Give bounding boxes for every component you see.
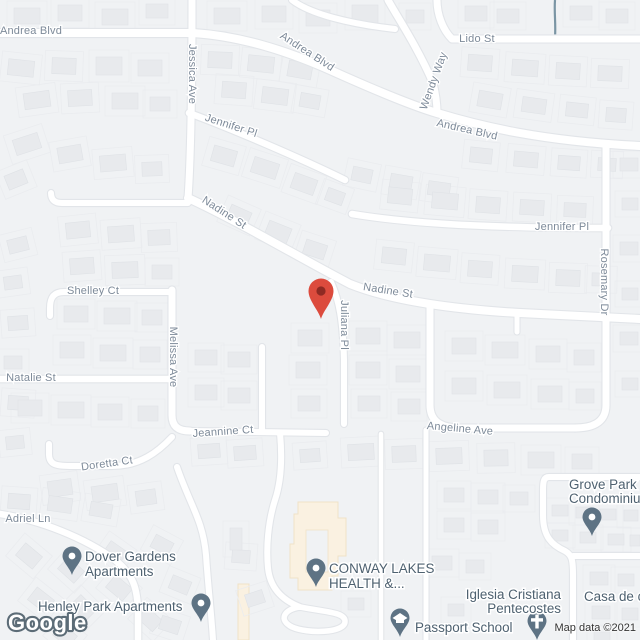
building bbox=[247, 55, 275, 74]
building bbox=[47, 478, 73, 497]
building bbox=[478, 520, 498, 534]
street-label-jessica-ave-5: Jessica Ave bbox=[186, 44, 198, 104]
building bbox=[4, 356, 22, 369]
building bbox=[484, 450, 508, 466]
building bbox=[630, 535, 640, 546]
building bbox=[497, 9, 519, 23]
building bbox=[195, 385, 217, 400]
building bbox=[150, 97, 170, 111]
building bbox=[396, 366, 420, 382]
building bbox=[142, 310, 162, 325]
building bbox=[431, 192, 458, 210]
building bbox=[448, 604, 464, 616]
building bbox=[195, 350, 217, 365]
building bbox=[7, 59, 35, 78]
building bbox=[198, 443, 221, 459]
building bbox=[572, 454, 592, 469]
building bbox=[444, 518, 464, 532]
building bbox=[140, 347, 160, 362]
poi-dot-icon bbox=[69, 553, 76, 560]
building bbox=[465, 6, 487, 21]
building bbox=[381, 247, 407, 265]
building bbox=[142, 162, 162, 177]
destination-pin-dot bbox=[316, 286, 325, 295]
school-cap-base-icon bbox=[396, 620, 404, 624]
street-label-adriel-ln-18: Adriel Ln bbox=[5, 513, 50, 525]
building bbox=[536, 346, 560, 362]
building bbox=[3, 275, 23, 290]
building bbox=[208, 52, 233, 69]
building bbox=[23, 90, 51, 109]
building bbox=[228, 388, 250, 403]
poi-label-casa-de-c[interactable]: Casa de c bbox=[584, 589, 640, 604]
poi-label-dover-gardens-apartments[interactable]: Dover Gardens bbox=[85, 549, 176, 564]
street-label-shelley-ct-11: Shelley Ct bbox=[67, 285, 119, 297]
building bbox=[234, 445, 257, 461]
building bbox=[356, 362, 380, 378]
poi-label-grove-park-condominiums[interactable]: Grove Park bbox=[569, 477, 637, 492]
building bbox=[556, 270, 581, 287]
street-label-jennifer-pl-7: Jennifer Pl bbox=[535, 221, 589, 233]
poi-dot-icon bbox=[589, 514, 596, 521]
building bbox=[558, 155, 581, 171]
building bbox=[65, 221, 91, 239]
building bbox=[590, 572, 608, 585]
building bbox=[552, 505, 568, 516]
building bbox=[513, 151, 538, 168]
building bbox=[576, 389, 594, 403]
building bbox=[152, 265, 172, 279]
building bbox=[466, 560, 484, 573]
street-label-andrea-blvd-0: Andrea Blvd bbox=[0, 25, 62, 37]
building bbox=[296, 362, 320, 378]
poi-label-dover-gardens-apartments[interactable]: Apartments bbox=[85, 564, 154, 579]
map-attribution: Map data ©2021 bbox=[555, 622, 637, 634]
building bbox=[452, 378, 476, 394]
poi-label-conway-lakes-health[interactable]: CONWAY LAKES bbox=[329, 561, 434, 576]
street-label-lido-st-3: Lido St bbox=[459, 33, 495, 45]
church-cross-icon bbox=[531, 618, 543, 621]
building bbox=[261, 86, 289, 105]
building bbox=[492, 342, 518, 358]
building bbox=[135, 489, 157, 507]
map-canvas[interactable]: Andrea BlvdAndrea BlvdAndrea BlvdLido St… bbox=[0, 0, 640, 640]
building bbox=[618, 574, 634, 586]
building bbox=[606, 107, 627, 122]
building bbox=[620, 242, 638, 255]
building bbox=[64, 306, 88, 322]
building bbox=[96, 57, 122, 75]
aoi-building-sliver bbox=[238, 584, 249, 640]
poi-dot-icon bbox=[313, 565, 320, 572]
building bbox=[423, 254, 450, 272]
building bbox=[298, 330, 322, 346]
building bbox=[469, 147, 492, 164]
building bbox=[520, 199, 545, 215]
building bbox=[58, 402, 84, 418]
building bbox=[478, 490, 498, 504]
building bbox=[622, 378, 638, 390]
building bbox=[394, 332, 420, 348]
building bbox=[556, 62, 581, 79]
building bbox=[14, 8, 40, 24]
creek-line bbox=[555, 0, 556, 37]
building bbox=[598, 66, 623, 82]
building bbox=[232, 549, 251, 563]
building bbox=[230, 528, 242, 550]
building bbox=[622, 198, 638, 210]
building bbox=[432, 556, 452, 570]
building bbox=[60, 342, 84, 358]
building bbox=[521, 96, 547, 114]
building bbox=[112, 262, 139, 279]
building bbox=[8, 493, 31, 509]
building bbox=[107, 225, 134, 243]
building bbox=[104, 308, 130, 324]
building bbox=[620, 158, 638, 171]
building bbox=[348, 598, 364, 610]
building bbox=[565, 102, 588, 118]
building bbox=[564, 203, 586, 218]
poi-label-passport-school[interactable]: Passport School bbox=[415, 620, 513, 635]
building bbox=[580, 532, 596, 543]
building bbox=[406, 10, 424, 23]
google-logo[interactable]: Google bbox=[6, 609, 88, 637]
building bbox=[475, 196, 500, 214]
building bbox=[538, 386, 562, 402]
building bbox=[98, 404, 122, 420]
building bbox=[138, 406, 158, 421]
google-logo-text: Google bbox=[8, 610, 87, 635]
building bbox=[138, 60, 162, 76]
building bbox=[392, 446, 417, 463]
poi-label-iglesia-cristiana-pentecostes[interactable]: Iglesia Cristiana bbox=[466, 587, 562, 602]
building bbox=[47, 495, 73, 513]
building bbox=[262, 6, 286, 22]
building bbox=[570, 6, 592, 20]
building bbox=[69, 257, 94, 275]
street-label-melissa-ave-12: Melissa Ave bbox=[167, 327, 179, 388]
building bbox=[91, 483, 119, 502]
building bbox=[512, 265, 539, 282]
building bbox=[387, 187, 413, 205]
building bbox=[600, 509, 616, 520]
building bbox=[214, 8, 240, 24]
building bbox=[112, 93, 138, 109]
building bbox=[221, 81, 246, 99]
building bbox=[99, 154, 126, 172]
building bbox=[398, 399, 420, 414]
building bbox=[574, 350, 594, 365]
building bbox=[348, 443, 375, 460]
building bbox=[299, 92, 321, 109]
building bbox=[592, 606, 610, 619]
building bbox=[608, 534, 624, 545]
building bbox=[606, 9, 628, 23]
poi-label-iglesia-cristiana-pentecostes[interactable]: Pentecostes bbox=[487, 601, 561, 616]
building bbox=[494, 382, 520, 398]
building bbox=[100, 345, 126, 361]
building bbox=[356, 328, 380, 344]
poi-label-grove-park-condominiums[interactable]: Condominiu bbox=[569, 491, 640, 506]
building bbox=[228, 352, 250, 367]
building bbox=[148, 230, 171, 246]
poi-label-conway-lakes-health[interactable]: HEALTH &... bbox=[329, 576, 405, 591]
map-svg: Andrea BlvdAndrea BlvdAndrea BlvdLido St… bbox=[0, 0, 640, 640]
building bbox=[624, 510, 638, 521]
poi-dot-icon bbox=[198, 600, 205, 607]
building bbox=[58, 5, 82, 21]
building bbox=[467, 54, 492, 72]
building bbox=[511, 59, 538, 77]
building bbox=[298, 396, 320, 411]
street-label-rosemary-dr-8: Rosemary Dr bbox=[598, 249, 610, 316]
building bbox=[18, 400, 42, 416]
street-label-natalie-st-13: Natalie St bbox=[6, 372, 56, 384]
building bbox=[452, 338, 476, 354]
building bbox=[467, 260, 492, 278]
building bbox=[52, 58, 77, 75]
building bbox=[5, 435, 24, 450]
building bbox=[146, 4, 168, 18]
building bbox=[300, 448, 321, 462]
building bbox=[622, 608, 638, 620]
building bbox=[510, 492, 528, 505]
street-label-juliana-pl-14: Juliana Pl bbox=[338, 300, 350, 350]
building bbox=[436, 448, 463, 465]
building bbox=[8, 315, 29, 330]
building bbox=[620, 332, 638, 345]
building bbox=[444, 488, 464, 502]
building bbox=[622, 288, 638, 300]
building bbox=[358, 396, 380, 411]
building bbox=[528, 452, 554, 468]
building bbox=[68, 89, 93, 106]
building bbox=[102, 9, 128, 25]
